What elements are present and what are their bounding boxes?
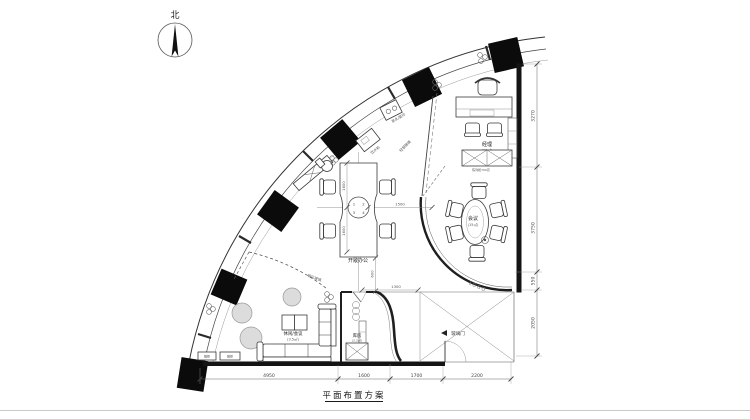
entry-door-swing [445, 341, 466, 362]
manager-guest-chair-2 [487, 123, 503, 137]
storage-curved-wall [377, 292, 401, 361]
dim-desk-lower: 1600 [341, 226, 346, 236]
dim-bottom-2: 1700 [411, 373, 423, 379]
open-office: 1 2 3 4 1600 1600 1500 600 1300 开敞办公 [315, 152, 434, 294]
bottom-wall [203, 362, 445, 367]
storage-area: (2.2㎡) [352, 338, 362, 343]
lounge-area: (3.5㎡) [287, 337, 299, 342]
open-office-desk [340, 163, 377, 257]
dim-right-1: 3750 [531, 222, 537, 234]
meeting-door-dash [423, 166, 445, 196]
dim-bottom-0: 4950 [263, 373, 275, 379]
column-3 [320, 119, 361, 160]
dim-below-desk: 600 [370, 270, 375, 278]
conference-room: LOGO 会议 (15㎡) [421, 183, 512, 294]
conference-table [462, 200, 489, 245]
dim-desk-right: 1500 [395, 202, 405, 207]
north-arrow: 北 [158, 10, 192, 57]
right-wall [517, 64, 521, 292]
storage-door-leaf [353, 292, 361, 302]
dim-corridor: 1300 [391, 284, 401, 289]
coffee-table-right [295, 315, 308, 330]
dim-right-0: 3270 [531, 110, 537, 122]
tempered-glass-label: 钢化玻璃 [307, 273, 323, 283]
dim-desk-upper: 1600 [341, 181, 346, 191]
coat-coil-icon [353, 302, 360, 321]
dim-bottom-1: 1600 [358, 373, 370, 379]
plant-icon [207, 304, 216, 315]
glass-door-arrow-icon [441, 330, 447, 336]
north-label: 北 [170, 10, 179, 21]
low-cabinet-label-2: 矮柜 [227, 354, 233, 359]
storage-room: 库房 (2.2㎡) [346, 302, 368, 361]
open-office-label: 开敞办公 [348, 257, 368, 264]
manager-room-label: 经理 [482, 141, 492, 148]
lounge: 钢化玻璃 休闲/会议 (3.5㎡) 矮柜 矮柜 [198, 252, 336, 362]
dim-right-2: 550 [531, 277, 537, 286]
storage-door-swing [361, 292, 366, 302]
display-cabinet-label: 陈列柜700高 [472, 167, 490, 172]
dim-bottom-3: 2200 [471, 373, 483, 379]
plant-circle [232, 303, 252, 323]
entry-area: 玻璃门 [420, 292, 514, 362]
lounge-door-dash [233, 252, 249, 281]
dim-right-3: 2050 [531, 317, 537, 329]
coffee-table-left [282, 315, 295, 330]
manager-exec-chair [478, 80, 497, 95]
low-cabinet-label-1: 矮柜 [204, 354, 210, 359]
lounge-glass-arc [249, 252, 327, 289]
plant-circle [283, 288, 301, 306]
column-5 [211, 269, 248, 306]
light-steel-glass-label: 轻钢玻璃 [398, 139, 412, 153]
meeting-room-label: 会议 [468, 215, 478, 222]
manager-desk [456, 97, 512, 117]
floor-plan-canvas: 北 [0, 0, 750, 419]
plant-icon [325, 292, 334, 303]
drawing-title: 平面布置方案 [322, 390, 385, 401]
logo-wall-label: LOGO [468, 281, 487, 294]
manager-guest-chair-1 [465, 123, 481, 137]
compass-needle [172, 24, 179, 57]
meeting-room-area: (15㎡) [468, 222, 479, 227]
lounge-label: 休闲/会议 [283, 330, 303, 337]
teapot-dot [484, 239, 486, 241]
glass-door-label: 玻璃门 [451, 330, 465, 337]
